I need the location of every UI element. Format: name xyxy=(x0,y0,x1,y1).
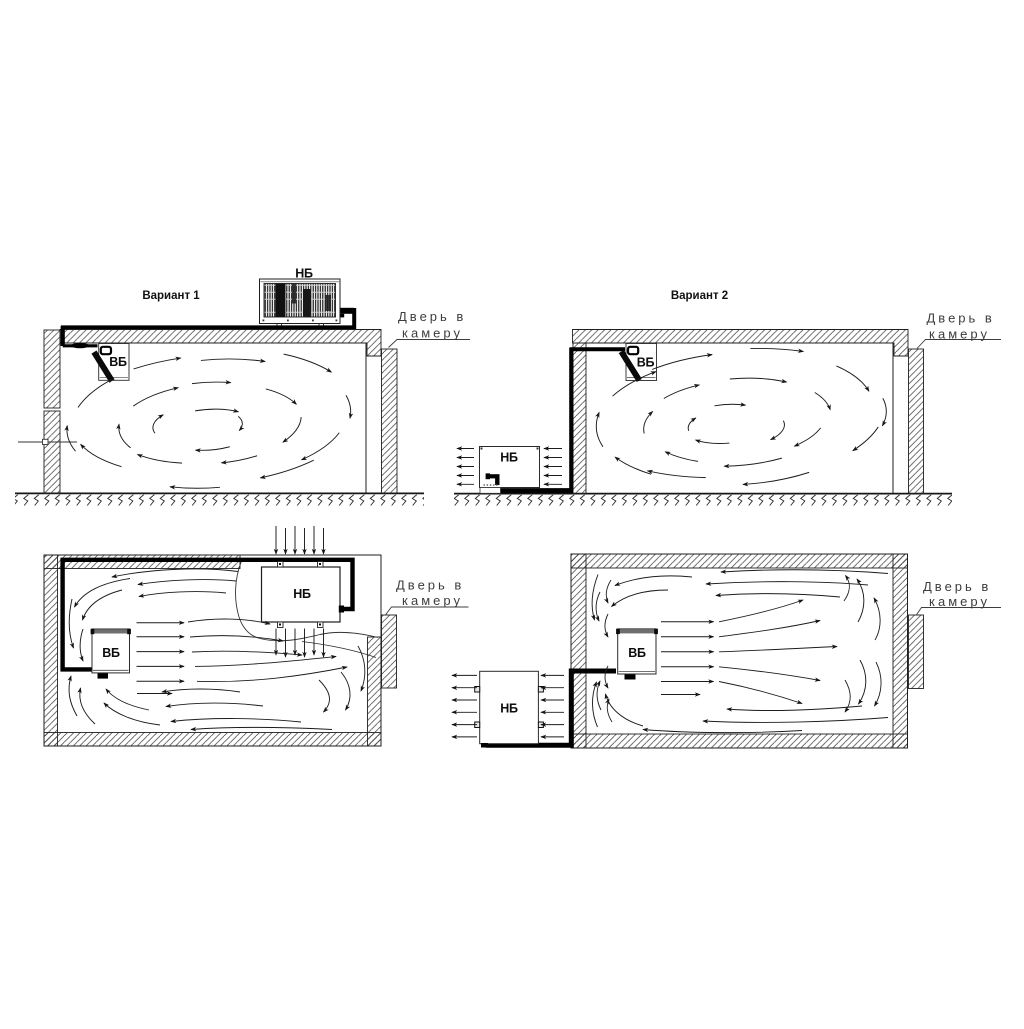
svg-text:камеру: камеру xyxy=(402,326,463,341)
svg-text:камеру: камеру xyxy=(929,594,990,609)
svg-text:Дверь в: Дверь в xyxy=(398,309,466,324)
svg-text:Дверь в: Дверь в xyxy=(927,311,995,326)
svg-text:Дверь в: Дверь в xyxy=(923,579,991,594)
svg-text:Дверь в: Дверь в xyxy=(396,578,464,593)
svg-text:ВБ: ВБ xyxy=(628,646,646,660)
svg-text:Вариант 1: Вариант 1 xyxy=(142,290,200,302)
svg-text:НБ: НБ xyxy=(295,267,313,281)
svg-text:камеру: камеру xyxy=(402,593,463,608)
svg-text:НБ: НБ xyxy=(500,451,518,465)
svg-text:ВБ: ВБ xyxy=(109,355,127,369)
svg-text:Вариант 2: Вариант 2 xyxy=(671,290,728,302)
svg-text:НБ: НБ xyxy=(500,702,518,716)
svg-text:ВБ: ВБ xyxy=(637,356,655,370)
svg-text:НБ: НБ xyxy=(293,587,311,601)
svg-text:ВБ: ВБ xyxy=(102,646,120,660)
